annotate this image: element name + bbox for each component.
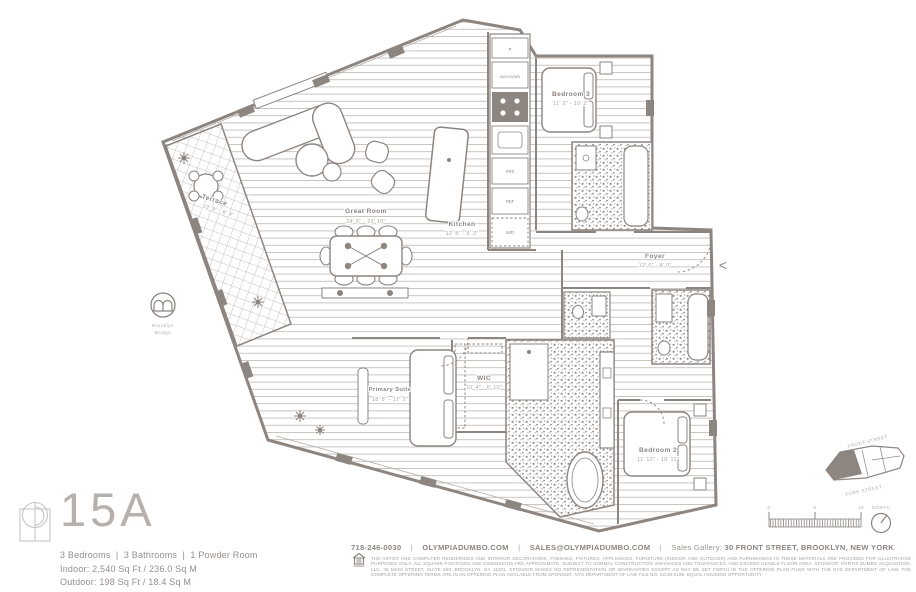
floorplan-sheet: P SMO/OV/WD FRZ REF W/D <box>0 0 916 592</box>
double-vanity <box>600 352 614 448</box>
legal-disclaimer: THE ARTIST AND COMPUTER RENDERINGS AND I… <box>371 556 911 577</box>
unit-indoor-area: Indoor: 2,540 Sq Ft / 236.0 Sq M <box>60 563 258 577</box>
room-dims-wic: 10' 4" - 6' 10" <box>466 385 502 391</box>
nightstand <box>600 126 612 138</box>
freezer-label: FRZ <box>506 169 515 174</box>
contact-email: SALES@OLYMPIADUMBO.COM <box>530 543 651 552</box>
room-dims-kitchen: 12' 8" - 9' 3" <box>446 231 479 237</box>
room-dims-great-room: 24' 6" - 23' 10" <box>346 219 385 225</box>
side-table <box>323 163 341 181</box>
toilet <box>573 306 584 319</box>
contact-phone: 718-246-0030 <box>351 543 401 552</box>
landmark-label-line1: Brooklyn <box>152 323 174 328</box>
scale-tick-5: 5 <box>813 505 816 510</box>
bathtub <box>688 294 708 360</box>
scale-tick-0: 0 <box>767 505 770 510</box>
separator: | <box>660 543 662 552</box>
contact-website: OLYMPIADUMBO.COM <box>422 543 508 552</box>
toilet <box>658 341 670 355</box>
bathroom-3 <box>572 142 652 230</box>
room-label-bedroom-2: Bedroom 2 <box>639 447 677 454</box>
north-compass: NORTH <box>872 505 891 533</box>
north-label: NORTH <box>872 505 891 510</box>
key-plan: FRONT STREET YORK STREET <box>826 434 904 497</box>
console-table <box>322 288 408 298</box>
scale-tick-10: 10 <box>858 505 864 510</box>
entry-marker: < <box>719 257 727 273</box>
pantry-label: P <box>509 47 512 52</box>
room-dims-bedroom-2: 11' 10" - 10' 11" <box>637 457 679 463</box>
refrigerator-label: REF <box>506 199 515 204</box>
landmark-label-line2: Bridge <box>155 330 171 335</box>
unit-name: 15A <box>60 486 156 533</box>
olympia-logo-icon <box>13 494 57 551</box>
cooktop <box>492 92 528 122</box>
unit-outdoor-area: Outdoor: 198 Sq Ft / 18.4 Sq M <box>60 576 258 590</box>
room-label-wic: WIC <box>477 375 491 382</box>
room-label-bedroom-3: Bedroom 3 <box>552 91 590 98</box>
sales-gallery-label: Sales Gallery: <box>671 543 722 552</box>
plant-icon <box>315 425 325 435</box>
equal-housing-icon <box>352 552 366 572</box>
powder-room <box>564 292 610 338</box>
room-label-foyer: Foyer <box>645 253 665 260</box>
bench <box>358 368 368 424</box>
bathtub <box>624 146 648 226</box>
nightstand <box>694 478 706 490</box>
contact-bar: 718-246-0030 | OLYMPIADUMBO.COM | SALES@… <box>351 543 894 552</box>
room-dims-foyer: 12' 0" - 8' 0" <box>639 263 672 269</box>
kitchen-appliance-wall: P SMO/OV/WD FRZ REF W/D <box>490 34 530 248</box>
wall-ovens-label: SMO/OV/WD <box>500 75 521 79</box>
unit-config: 3 Bedrooms | 3 Bathrooms | 1 Powder Room <box>60 549 258 563</box>
room-label-great-room: Great Room <box>345 208 387 215</box>
room-dims-bedroom-3: 11' 2" - 10' 2" <box>553 101 589 107</box>
nightstand <box>600 62 612 74</box>
room-label-kitchen: Kitchen <box>449 221 476 228</box>
sink <box>592 296 606 316</box>
room-label-primary-suite: Primary Suite <box>369 387 412 393</box>
unit-specs: 3 Bedrooms | 3 Bathrooms | 1 Powder Room… <box>60 549 258 590</box>
keyplan-street-bottom: YORK STREET <box>845 484 883 497</box>
nightstand <box>694 404 706 416</box>
washer-dryer-label: W/D <box>506 230 514 235</box>
scale-bar: 0 5 10 <box>767 505 864 527</box>
toilet <box>576 207 588 221</box>
sink <box>576 146 596 170</box>
bathroom-2 <box>652 290 710 364</box>
sink <box>656 294 672 322</box>
room-dims-primary-suite: 18' 5" - 17' 2" <box>372 397 408 403</box>
brooklyn-bridge-icon: Brooklyn Bridge <box>151 293 175 335</box>
separator: | <box>411 543 413 552</box>
separator: | <box>518 543 520 552</box>
sales-gallery-address: 30 FRONT STREET, BROOKLYN, NEW YORK <box>724 543 894 552</box>
